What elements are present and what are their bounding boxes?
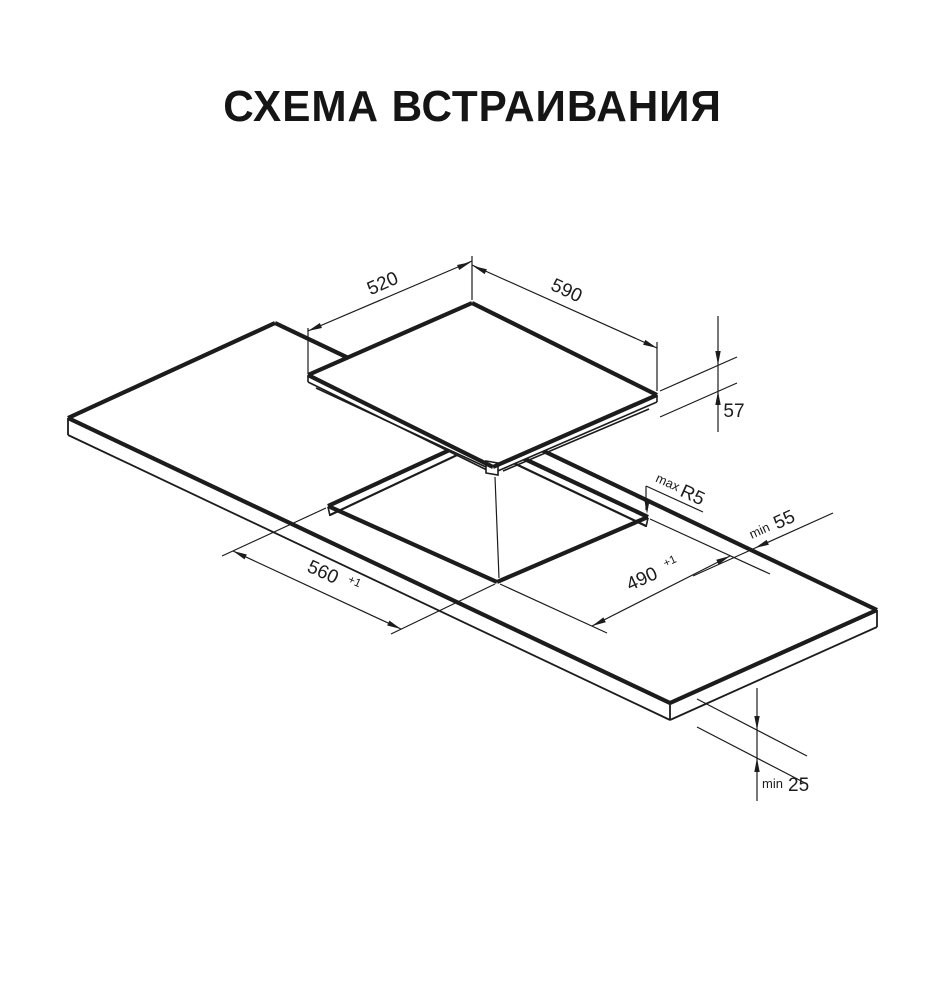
dim-hob-depth: 520 <box>364 268 401 300</box>
dim-bottom-clearance-prefix: min <box>762 776 783 791</box>
dim-corner-radius-prefix: max <box>654 470 683 494</box>
page: СХЕМА ВСТРАИВАНИЯ <box>0 0 945 1000</box>
dim-cutout-width-tolerance: +1 <box>346 574 363 590</box>
installation-diagram: 520 590 57 max R5 min 55 560 +1 490 +1 <box>0 0 945 1000</box>
dim-hob-height: 57 <box>723 401 744 422</box>
dim-rear-clearance-prefix: min <box>747 519 772 541</box>
dim-hob-width: 590 <box>548 275 586 307</box>
dim-bottom-clearance: 25 <box>788 775 809 796</box>
dim-corner-radius: R5 <box>677 481 708 510</box>
